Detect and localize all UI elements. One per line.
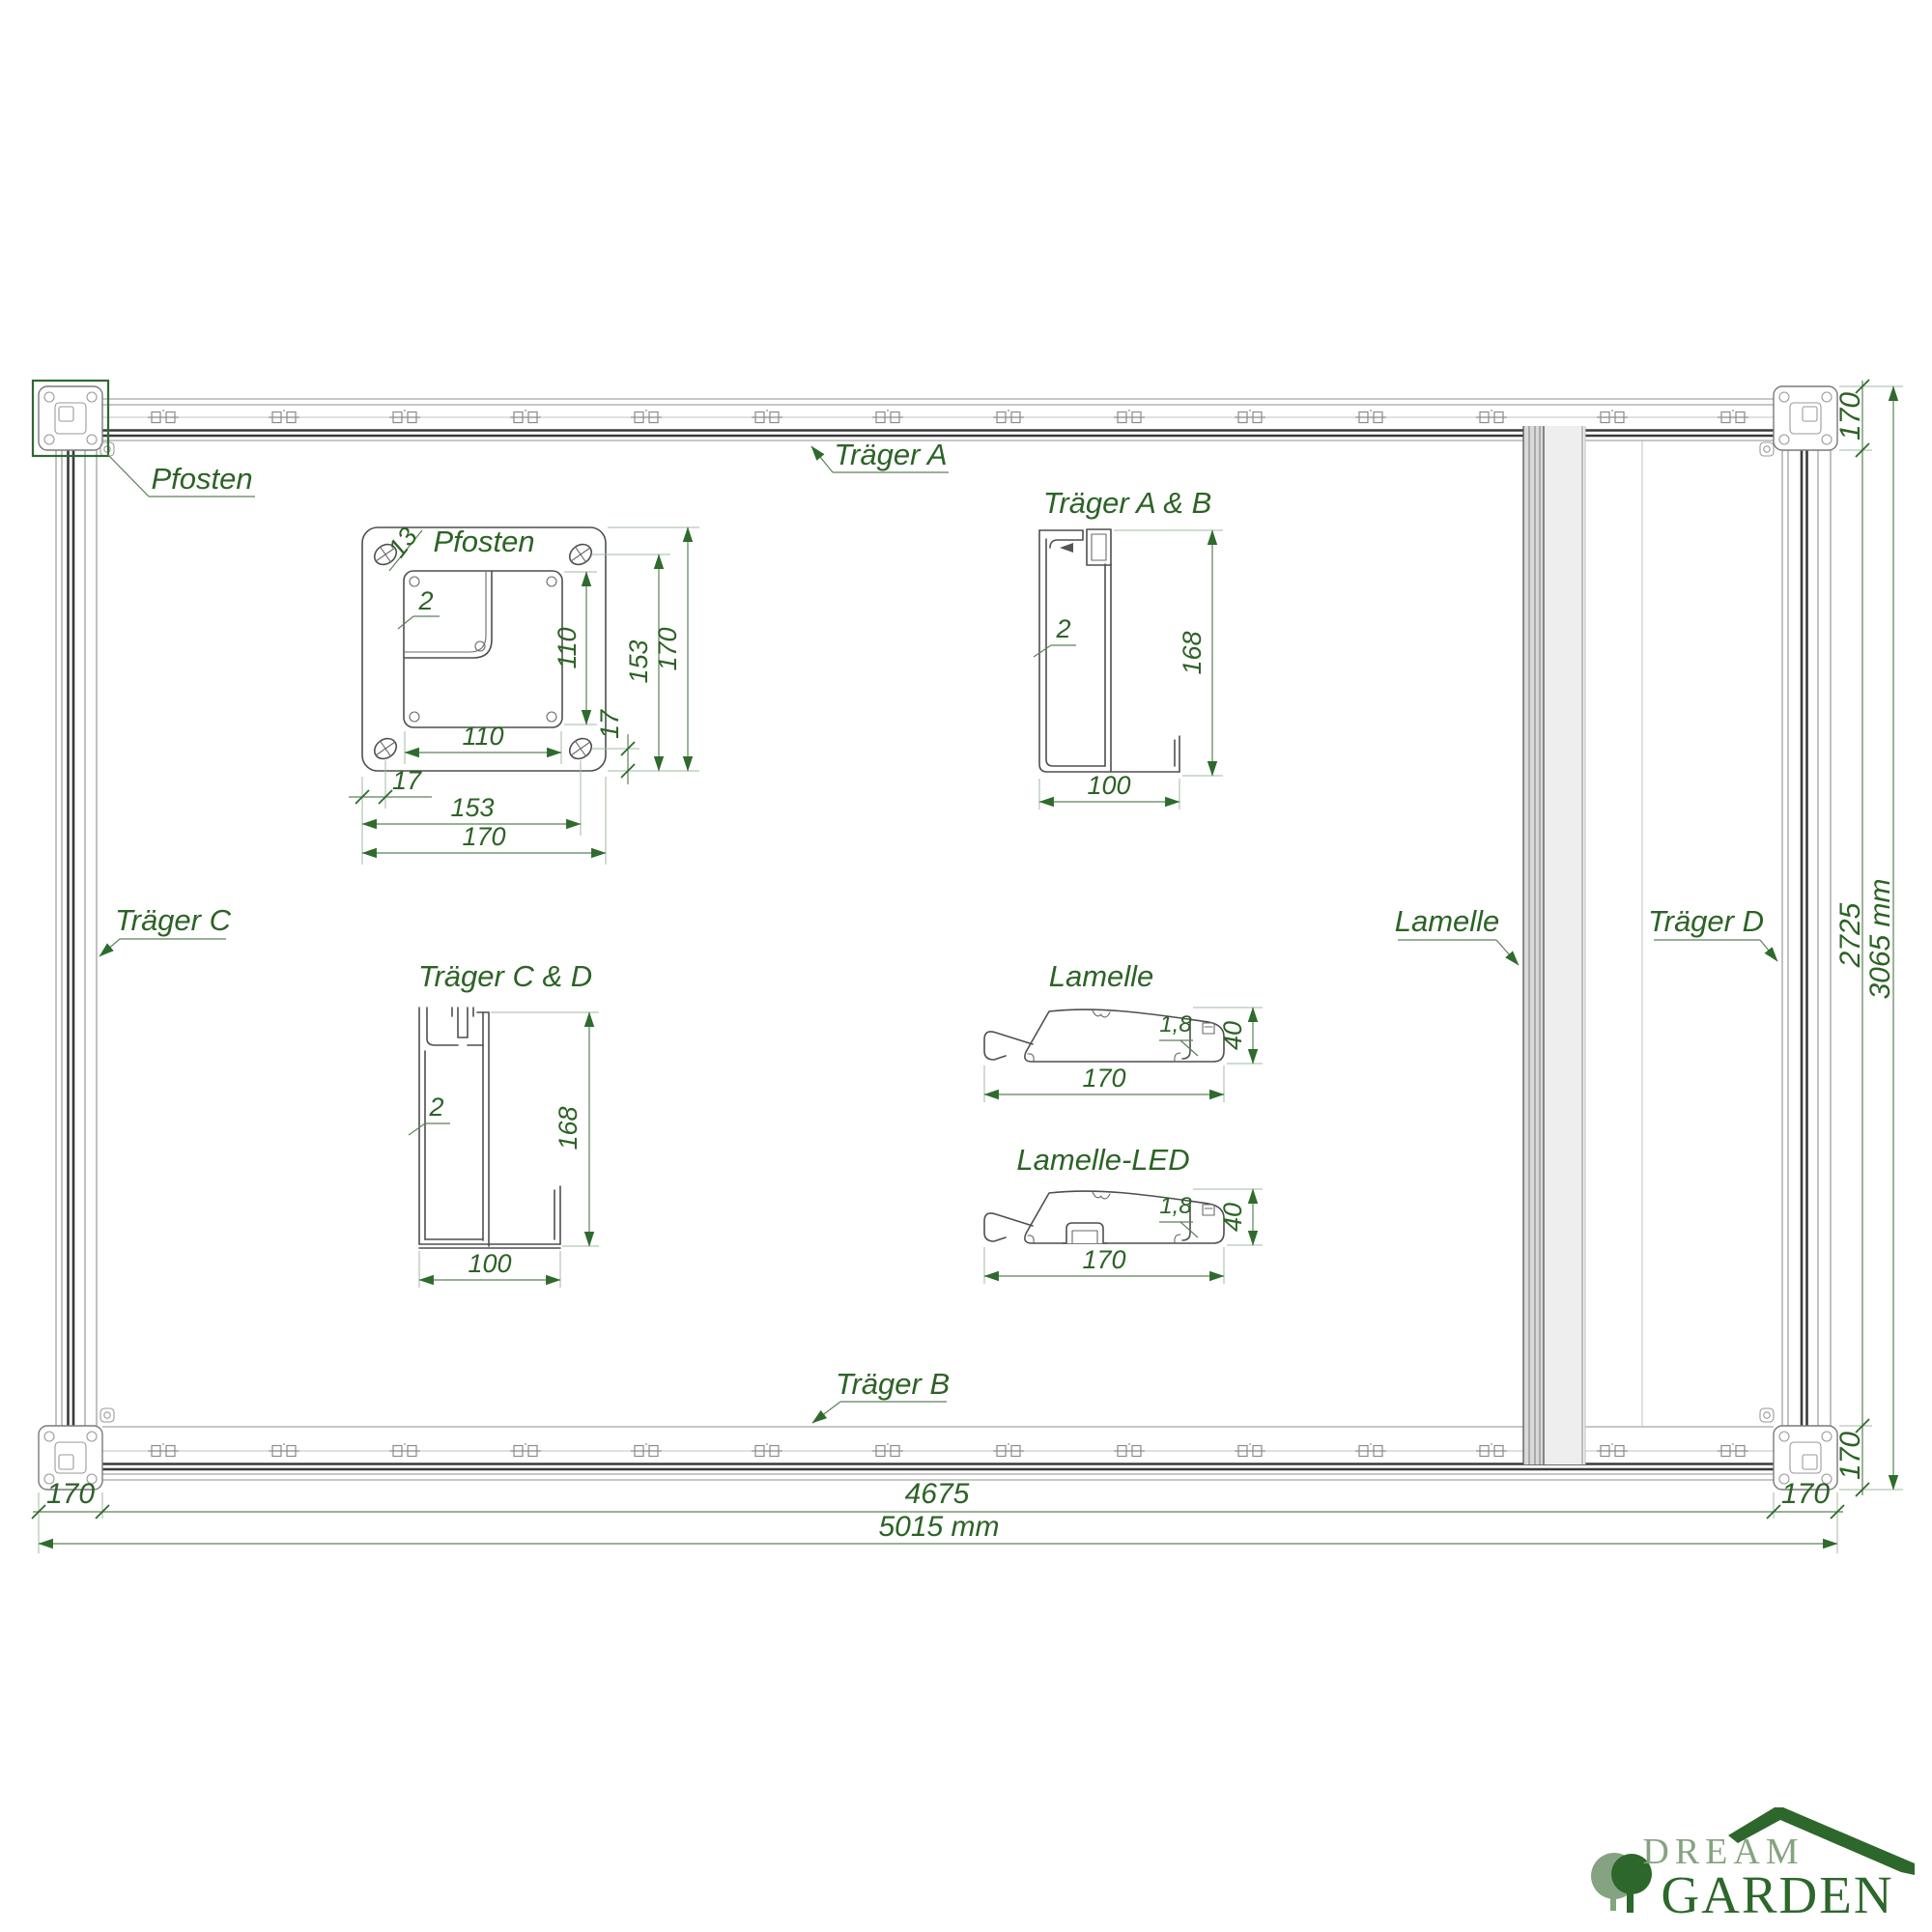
plan-dims-bottom: 170 4675 170 5015 mm (32, 1478, 1844, 1553)
traeger-ab-dimensions: 2 168 100 (1034, 530, 1223, 810)
dim-pfosten-170-v: 170 (653, 627, 682, 670)
dim-right-total-3065: 3065 mm (1864, 878, 1896, 999)
lamelle-detail: Lamelle 1,8 40 170 (984, 959, 1263, 1102)
logo-text-garden: GARDEN (1661, 1865, 1893, 1924)
plan-label-traeger-d: Träger D (1648, 904, 1764, 938)
detail-pfosten-title: Pfosten (433, 525, 534, 558)
brand-logo: DREAM GARDEN (1591, 1807, 1915, 1924)
pfosten-detail: Pfosten 13 2 110 (349, 522, 699, 865)
plan-dims-right: 170 2725 170 3065 mm (1834, 380, 1903, 1496)
lamelle-led-detail: Lamelle-LED 1,8 40 170 (984, 1143, 1263, 1284)
traeger-c-rail (56, 440, 97, 1427)
dim-traeger-ab-wall: 2 (1055, 614, 1070, 643)
dim-lamelle-led-wall: 1,8 (1159, 1193, 1192, 1219)
lamelle-slat (1523, 426, 1585, 1464)
dim-bottom-4675: 4675 (905, 1478, 970, 1510)
dim-right-top-170: 170 (1834, 392, 1866, 440)
dim-pfosten-17-h: 17 (392, 766, 422, 795)
dim-bottom-right-170: 170 (1781, 1478, 1830, 1510)
dim-bottom-left-170: 170 (46, 1478, 95, 1510)
lamelle-dimensions: 1,8 40 170 (984, 1008, 1263, 1102)
dim-bottom-total-5015: 5015 mm (878, 1511, 999, 1543)
dim-traeger-cd-168: 168 (554, 1106, 582, 1150)
dim-traeger-cd-100: 100 (468, 1249, 511, 1278)
traeger-d-rail (1782, 440, 1831, 1427)
detail-lamelle-led-title: Lamelle-LED (1016, 1143, 1189, 1177)
traeger-cd-detail: Träger C & D 2 168 1 (409, 959, 599, 1288)
dim-pfosten-153-v: 153 (624, 639, 653, 683)
technical-drawing-page: Pfosten Träger A Träger C Lamelle Träger… (0, 0, 1932, 1932)
dim-lamelle-170: 170 (1082, 1064, 1125, 1093)
corner-plate-top-left (39, 386, 102, 450)
plan-label-traeger-b: Träger B (836, 1367, 950, 1401)
plan-label-traeger-a: Träger A (834, 438, 947, 471)
dim-pfosten-110-h: 110 (462, 722, 503, 751)
plan-label-pfosten: Pfosten (151, 462, 252, 496)
dim-traeger-ab-100: 100 (1087, 771, 1130, 800)
plan-label-lamelle: Lamelle (1395, 904, 1500, 938)
pfosten-dimensions: 13 2 110 153 170 17 110 (349, 522, 699, 865)
plan-view: Pfosten Träger A Träger C Lamelle Träger… (32, 380, 1903, 1553)
dim-right-2725: 2725 (1834, 902, 1866, 968)
detail-traeger-cd-title: Träger C & D (418, 959, 592, 993)
corner-brackets (100, 442, 1774, 1422)
dim-lamelle-led-170: 170 (1082, 1245, 1125, 1274)
traeger-cd-dimensions: 2 168 100 (409, 1012, 599, 1288)
dim-pfosten-153-h: 153 (450, 793, 494, 822)
detail-lamelle-title: Lamelle (1049, 959, 1154, 993)
dim-pfosten-wall-2: 2 (417, 586, 433, 615)
corner-plate-top-right (1774, 386, 1837, 450)
dim-lamelle-wall: 1,8 (1159, 1011, 1192, 1037)
dim-pfosten-170-h: 170 (462, 822, 505, 851)
dim-lamelle-40: 40 (1218, 1021, 1247, 1050)
dim-traeger-cd-wall: 2 (428, 1093, 443, 1122)
traeger-ab-detail: Träger A & B 2 168 100 (1034, 486, 1223, 810)
plan-label-traeger-c: Träger C (115, 903, 232, 937)
dim-lamelle-led-40: 40 (1218, 1203, 1247, 1232)
dim-right-bottom-170: 170 (1834, 1432, 1866, 1480)
dim-pfosten-110-v: 110 (553, 627, 582, 668)
lamelle-led-dimensions: 1,8 40 170 (984, 1189, 1263, 1284)
detail-traeger-ab-title: Träger A & B (1043, 486, 1212, 520)
profile-arrow-mark (1060, 543, 1073, 553)
dim-traeger-ab-168: 168 (1178, 631, 1207, 674)
dim-pfosten-17-v: 17 (595, 709, 624, 739)
